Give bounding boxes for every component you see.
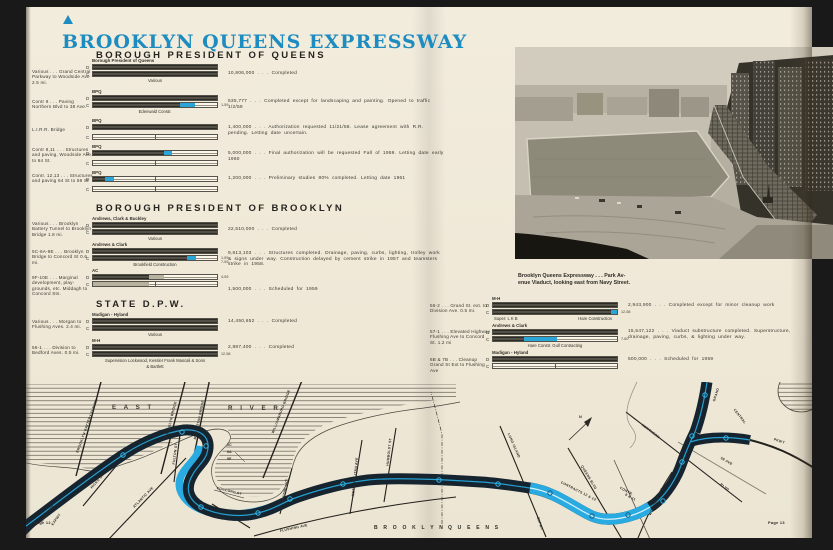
design-bar	[492, 356, 618, 362]
construction-row-letter: C	[86, 161, 89, 166]
design-row-letter: D	[486, 330, 489, 335]
page-number-right: Page 13	[768, 520, 785, 525]
letting-date: 4-59	[221, 275, 228, 279]
construction-bar	[92, 102, 218, 108]
gantt-group: AC D 4-59 C	[92, 268, 218, 288]
photo-caption-line2: enue Viaduct, looking east from Navy Str…	[518, 280, 726, 287]
construction-bar	[92, 229, 218, 235]
construction-bar	[492, 309, 618, 315]
design-row-letter: D	[86, 151, 89, 156]
gantt-group: M-H D C 12-58 Supervision Lockwood, Kess…	[92, 338, 218, 369]
design-bar	[92, 176, 218, 182]
status-note: 535,777 . . . Completed except for lands…	[228, 99, 446, 110]
route-map: N E A S T R I V E R BROOKLYN-BATTERY TUN…	[26, 382, 812, 538]
book-spread: BROOKLYN QUEENS EXPRESSWAY BOROUGH PRESI…	[0, 0, 833, 550]
design-bar	[92, 274, 218, 280]
construction-bar	[92, 186, 218, 192]
design-row-letter: D	[86, 223, 89, 228]
construction-row-letter: C	[86, 72, 89, 77]
design-bar	[92, 344, 218, 350]
status-note: 2,887,400 . . . Completed	[228, 345, 446, 351]
contractor-label: Various	[92, 78, 218, 83]
letting-date: 12-58	[621, 310, 630, 314]
gantt-group: Madigan - Hyland D C	[492, 350, 618, 370]
construction-bar	[92, 71, 218, 77]
design-row-letter: D	[86, 319, 89, 324]
contractor-label: Various	[92, 236, 218, 241]
gowanus-label-2: EXPWY	[51, 512, 62, 526]
atlantic-ave-line	[108, 458, 186, 538]
row-label: Contr 9 . . . Paving Northern Blvd to 38…	[32, 99, 94, 110]
gantt-group: BPQ D C	[92, 144, 218, 167]
northern-label: NORTHERN	[641, 423, 661, 439]
contractor-label: Various	[92, 332, 218, 337]
queens-borough-label: Q U E E N S	[448, 525, 500, 531]
section-5c-label: 5C	[227, 443, 232, 447]
design-row-letter: D	[86, 275, 89, 280]
row-label: 56-1 . . . Division to Bedford Aves. 0.5…	[32, 345, 94, 356]
north-arrow-icon: N	[569, 415, 592, 440]
north-label: N	[579, 415, 582, 419]
row-label: Various . . . Brooklyn Battery Tunnel to…	[32, 221, 94, 237]
borough-boundary-line	[431, 392, 442, 524]
pond	[778, 382, 812, 412]
flushing-ave-label: FLUSHING AVE	[279, 523, 308, 533]
gantt-group: M-H D C 12-58 Super: L K BHare Construct…	[492, 296, 618, 321]
construction-row-letter: C	[486, 310, 489, 315]
blue-triangle-icon	[63, 15, 73, 24]
row-label: Various . . . Morgan to Flushing Aves. 2…	[32, 319, 94, 330]
construction-row-letter: C	[86, 352, 89, 357]
status-note: 1,200,000 . . . Preliminary studies 80% …	[228, 176, 446, 182]
supervision-label: Super: L K B	[494, 316, 518, 321]
design-bar	[92, 64, 218, 70]
central-label: CENTRAL	[733, 408, 747, 425]
photo-caption-line1: Brooklyn Queens Expressway . . . Park Av…	[518, 273, 726, 280]
construction-row-letter: C	[486, 337, 489, 342]
design-bar	[92, 318, 218, 324]
northern-blvd-label: BLVD	[719, 483, 730, 492]
construction-row-letter: C	[86, 103, 89, 108]
creek-line	[627, 382, 638, 448]
queens-blvd-line	[568, 448, 626, 538]
construction-bar	[492, 363, 618, 369]
supervision-label-2: & Bartlett	[92, 364, 218, 369]
design-bar	[492, 302, 618, 308]
row-label: 57-1 . . . Elevated Highway Flushing Ave…	[430, 329, 492, 345]
humboldt-st-label: HUMBOLDT ST	[386, 437, 393, 466]
status-note: 1,400,000 . . . Authorization requested …	[228, 125, 446, 136]
supervision-label: Supervision Lockwood, Kessler Frank Masc…	[92, 358, 218, 363]
page-number-left: Page 12	[34, 520, 51, 525]
status-note: 22,510,000 . . . Completed	[228, 227, 446, 233]
construction-row-letter: C	[86, 256, 89, 261]
58-ave-label: 58 AVE	[720, 456, 734, 466]
design-row-letter: D	[86, 96, 89, 101]
expwy-label: EXPWY	[536, 517, 544, 532]
row-label: 5C-6A-9E . . . Brooklyn Bridge to Concor…	[32, 249, 94, 265]
construction-row-letter: C	[486, 364, 489, 369]
gantt-group: Madigan - Hyland D C Various	[92, 312, 218, 337]
construction-row-letter: C	[86, 187, 89, 192]
status-note: 14,450,652 . . . Completed	[228, 319, 446, 325]
river-label: R I V E R	[228, 405, 281, 412]
design-row-letter: D	[86, 125, 89, 130]
status-note: 10,806,000 . . . Completed	[228, 71, 446, 77]
design-bar	[92, 95, 218, 101]
section-9e-label: 9E	[227, 457, 232, 461]
status-note: 9,613,103 . . . Structures completed. Dr…	[228, 251, 446, 268]
grand-central-pkwy-line	[750, 440, 812, 468]
design-row-letter: D	[486, 303, 489, 308]
construction-bar	[92, 160, 218, 166]
heading-brooklyn: BOROUGH PRESIDENT OF BROOKLYN	[96, 203, 344, 214]
design-bar	[92, 248, 218, 254]
status-note: 5,000,000 . . . Final authorization will…	[228, 151, 446, 162]
gantt-group: Andrews & Clark D C 1-59 7-59 Brookfield…	[92, 242, 218, 267]
design-row-letter: D	[86, 249, 89, 254]
design-bar	[492, 329, 618, 335]
gantt-group: BPQ D C 1-59 Edenwald Constr.	[92, 89, 218, 114]
contr-8-11-label-2: 8 & 11	[624, 493, 636, 502]
grand-label: GRAND	[712, 387, 720, 402]
design-row-letter: D	[486, 357, 489, 362]
design-row-letter: D	[86, 65, 89, 70]
east-label: E A S T	[112, 404, 154, 411]
design-row-letter: D	[86, 177, 89, 182]
status-note: 1,500,000 . . . Scheduled for 1959	[228, 287, 446, 293]
row-label: Contr 8,11 . . . Structures and paving, …	[32, 147, 94, 163]
pkwy-label: PKWY	[773, 437, 785, 444]
construction-row-letter: C	[86, 282, 89, 287]
letting-date: 12-58	[221, 352, 230, 356]
gantt-group: BPQ D C	[92, 170, 218, 193]
row-label: 6B & 7B . . . Cleanup Grand St Ext to Fl…	[430, 357, 492, 373]
contractor-label: Brookfield Construction	[92, 262, 218, 267]
construction-bar	[92, 351, 218, 357]
heading-state-dpw: STATE D.P.W.	[96, 299, 186, 310]
section-6a-label: 6A	[227, 450, 232, 454]
queens-blvd-label: QUEENS BLVD	[580, 465, 598, 491]
construction-bar	[492, 336, 618, 342]
brooklyn-borough-label: B R O O K L Y N	[374, 525, 445, 531]
design-bar	[92, 124, 218, 130]
long-island-label: LONG ISLAND	[507, 433, 522, 459]
row-label: 56-2 . . . Grand St. ext. to Division Av…	[430, 303, 492, 314]
construction-bar	[92, 281, 218, 287]
aerial-photo	[515, 47, 833, 259]
construction-row-letter: C	[86, 135, 89, 140]
contractor-label: Hare Constr. Gull Contracting	[492, 343, 618, 348]
design-bar	[92, 222, 218, 228]
contractor-label: Edenwald Constr.	[92, 109, 218, 114]
construction-row-letter: C	[86, 326, 89, 331]
atlantic-ave-label: ATLANTIC AVE	[132, 486, 155, 509]
construction-bar	[92, 255, 218, 261]
status-note: 2,943,900 . . . Completed except for min…	[628, 303, 808, 309]
contractor-label: Hare Construction	[578, 316, 612, 321]
row-label: L.I.R.R. Bridge	[32, 127, 94, 132]
gantt-group: Borough President of Queens D C Various	[92, 58, 218, 83]
photo-caption: Brooklyn Queens Expressway . . . Park Av…	[518, 273, 726, 286]
construction-row-letter: C	[86, 230, 89, 235]
design-bar	[92, 150, 218, 156]
gantt-group: Andrews, Clark & Buckley D C Various	[92, 216, 218, 241]
status-note: 15,547,122 . . . Viaduct substructure co…	[628, 329, 808, 340]
status-note: 500,000 . . . Scheduled for 1959	[628, 357, 808, 363]
construction-bar	[92, 134, 218, 140]
row-label: 9F-10E . . . Marginal development, play-…	[32, 275, 94, 296]
section-57-1-label: 57-1	[215, 515, 224, 521]
gantt-group: Andrews & Clark D C 7-60 Hare Constr. Gu…	[492, 323, 618, 348]
row-label: Contr. 12,13 . . . Structures and paving…	[32, 173, 94, 184]
construction-bar	[92, 325, 218, 331]
design-row-letter: D	[86, 345, 89, 350]
row-label: Various . . . Grand Central Parkway to W…	[32, 69, 94, 85]
gantt-group: BPQ D C	[92, 118, 218, 141]
